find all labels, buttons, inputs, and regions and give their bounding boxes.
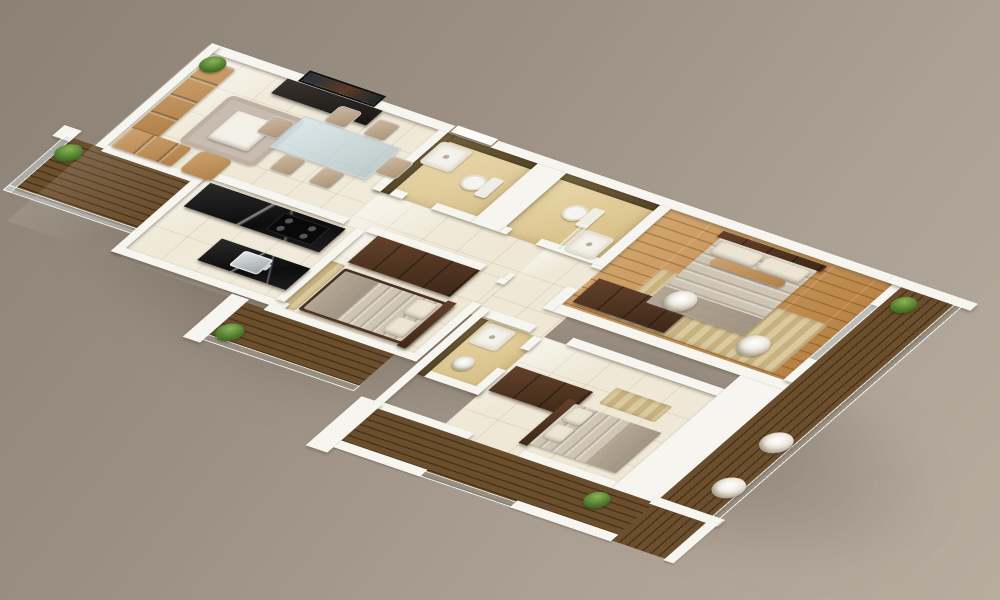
scene-background (0, 0, 1000, 600)
